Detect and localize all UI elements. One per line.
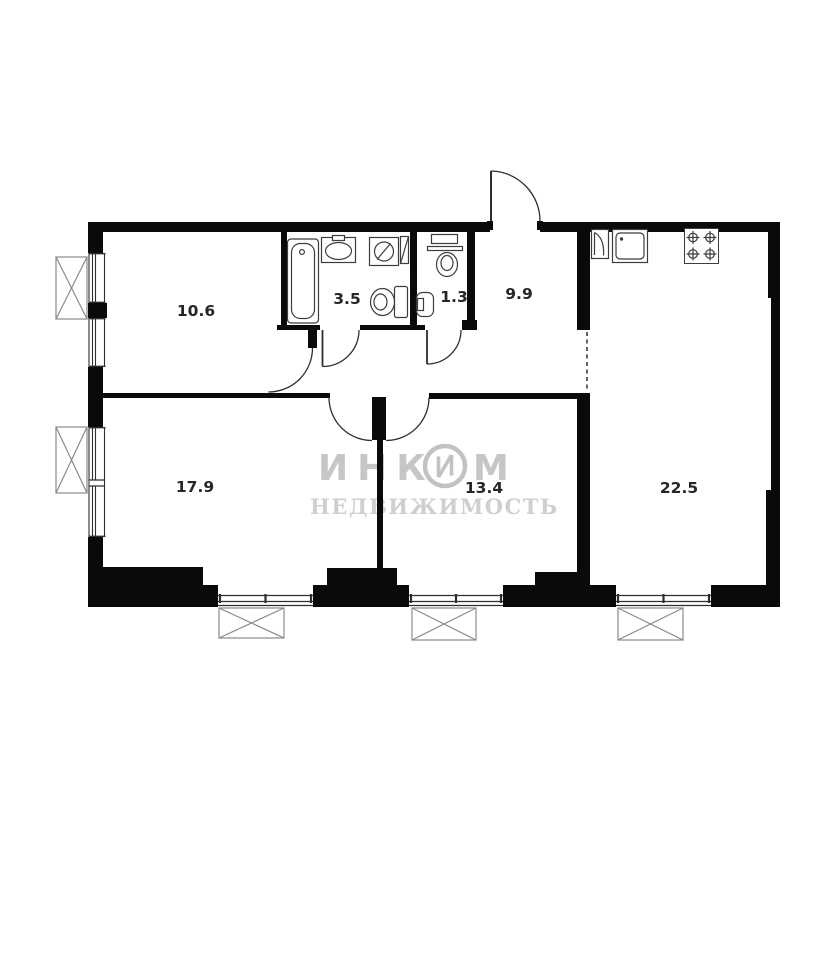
washbasin-icon xyxy=(322,236,356,263)
room-area-label-17-9: 17.9 xyxy=(176,478,214,496)
watermark-tagline: НЕДВИЖИМОСТЬ xyxy=(310,494,559,519)
vent-duct-icon xyxy=(401,237,409,264)
window-bottom-middle xyxy=(409,593,503,606)
floor-plan-svg: ИНК М НЕДВИЖИМОСТЬ xyxy=(0,0,828,960)
x-box-bottom-middle xyxy=(412,608,476,640)
x-box-bottom-left xyxy=(219,608,284,638)
window-left-top xyxy=(88,253,106,303)
stove-icon xyxy=(685,229,719,264)
wc-corner-basin-icon xyxy=(417,293,434,317)
x-box-left-top xyxy=(56,257,87,319)
window-left-middle xyxy=(88,318,106,367)
watermark-brand-left: ИНК xyxy=(318,448,435,489)
wc-shelf-sink-icon xyxy=(428,235,463,251)
window-left-bottom xyxy=(88,427,106,537)
room-area-label-13-4: 13.4 xyxy=(465,479,503,497)
kitchen-sink-icon xyxy=(613,230,648,263)
wc-toilet-icon xyxy=(437,253,458,277)
window-bottom-right xyxy=(616,593,711,606)
room-area-label-9-9: 9.9 xyxy=(505,285,532,303)
toilet-icon xyxy=(371,287,408,318)
x-box-bottom-right xyxy=(618,608,683,640)
bathtub-icon xyxy=(288,239,319,323)
x-box-left-bottom xyxy=(56,427,87,493)
room-area-label-10-6: 10.6 xyxy=(177,302,215,320)
floor-plan-page: ИНК М НЕДВИЖИМОСТЬ xyxy=(0,0,828,960)
room-area-label-1-3: 1.3 xyxy=(440,288,467,306)
washing-machine-icon xyxy=(370,238,399,266)
window-bottom-left xyxy=(218,593,313,606)
room-area-label-22-5: 22.5 xyxy=(660,479,698,497)
room-area-label-3-5: 3.5 xyxy=(333,290,360,308)
fridge-icon xyxy=(592,230,609,259)
